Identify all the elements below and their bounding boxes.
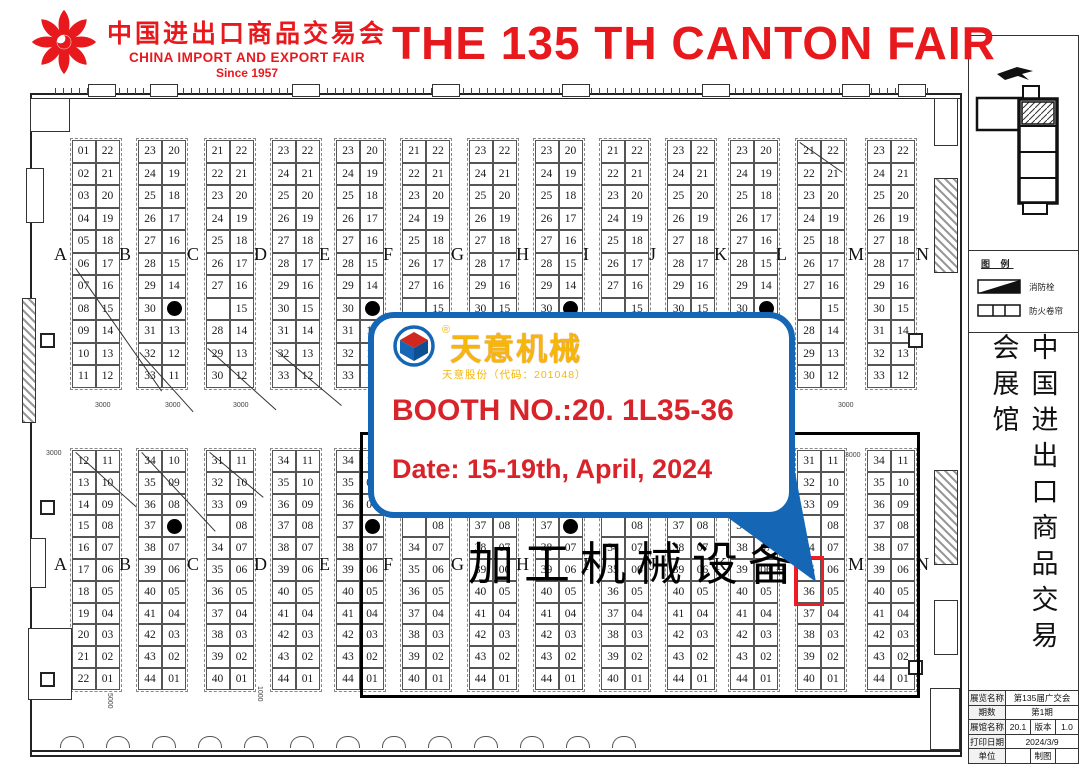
booth-cell: 20 (691, 185, 715, 208)
title-block-row: 期数 第1期 (969, 706, 1078, 721)
booth-cell: 26 (535, 208, 559, 231)
exhibitor-callout: ®天意机械 天意股份（代码：201048） BOOTH NO.:20. 1L35… (368, 312, 795, 518)
booth-cell: 34 (336, 450, 360, 472)
booth-cell: 16 (559, 230, 583, 253)
booth-cell: 22 (601, 163, 625, 186)
booth-cell: 28 (535, 253, 559, 276)
booth-cell: 26 (402, 253, 426, 276)
left-wall-room (26, 168, 44, 223)
booth-cell: 17 (360, 208, 384, 231)
booth-cell: 30 (797, 365, 821, 388)
booth-cell: 16 (72, 537, 96, 559)
booth-cell: 25 (601, 230, 625, 253)
booth-cell: 11 (230, 450, 254, 472)
booth-cell: 03 (96, 624, 120, 646)
booth-cell: 15 (891, 298, 915, 321)
right-wall-room (934, 600, 958, 655)
column-letter: D (254, 554, 267, 575)
booth-cell: 17 (891, 253, 915, 276)
booth-cell: 25 (469, 185, 493, 208)
booth-cell: 36 (206, 581, 230, 603)
booth-cell: 10 (72, 343, 96, 366)
booth-cell: 40 (138, 581, 162, 603)
booth-cell: 20 (96, 185, 120, 208)
booth-cell: 27 (601, 275, 625, 298)
right-wall-room (934, 470, 958, 565)
exhibitor-brand-row: ®天意机械 天意股份（代码：201048） (392, 324, 771, 380)
title-block-value: 第135届广交会 (1006, 691, 1078, 705)
booth-cell: 13 (162, 320, 186, 343)
booth-cell: 20 (493, 185, 517, 208)
booth-cell: 12 (891, 365, 915, 388)
booth-cell: 44 (272, 668, 296, 690)
booth-cell: 31 (336, 320, 360, 343)
booth-cell: 14 (162, 275, 186, 298)
booth-cell: 22 (402, 163, 426, 186)
booth-cell: 03 (296, 624, 320, 646)
booth-cell: 04 (230, 603, 254, 625)
title-block-value: 1.0 (1056, 720, 1078, 734)
booth-cell: 16 (230, 275, 254, 298)
door-arc (566, 736, 590, 748)
legend-label: 消防栓 (1029, 281, 1055, 293)
booth-cell: 43 (138, 646, 162, 668)
booth-cell: 33 (867, 365, 891, 388)
booth-cell: 29 (206, 343, 230, 366)
booth-cell: 14 (821, 320, 845, 343)
booth-cell: 17 (821, 253, 845, 276)
canton-fair-flower-logo (28, 6, 100, 78)
booth-cell: 28 (797, 320, 821, 343)
booth-cell: 16 (754, 230, 778, 253)
booth-cell: 05 (72, 230, 96, 253)
booth-cell: 19 (162, 163, 186, 186)
door-arc (60, 736, 84, 748)
booth-cell (797, 298, 821, 321)
booth-cell: 06 (296, 559, 320, 581)
booth-cell: 13 (821, 343, 845, 366)
booth-cell: 38 (272, 537, 296, 559)
title-block-label: 制图 (1031, 749, 1056, 763)
booth-cell: 20 (821, 185, 845, 208)
booth-cell: 02 (96, 646, 120, 668)
dimension-label: 1000 (256, 686, 263, 702)
legend-item-fire-hydrant: 消防栓 (977, 279, 1070, 294)
booth-cell: 31 (272, 320, 296, 343)
booth-cell: 25 (272, 185, 296, 208)
header: 中国进出口商品交易会 CHINA IMPORT AND EXPORT FAIR … (0, 0, 1080, 92)
booth-cell: 16 (891, 275, 915, 298)
booth-cell: 04 (96, 603, 120, 625)
booth-cell: 08 (72, 298, 96, 321)
booth-cell: 10 (96, 472, 120, 494)
column-letter: C (187, 244, 199, 265)
booth-cell: 16 (493, 275, 517, 298)
booth-cell: 03 (162, 624, 186, 646)
legend-item-fire-curtain: 防火卷帘 (977, 303, 1070, 318)
booth-cell: 18 (96, 230, 120, 253)
booth-cell: 16 (426, 275, 450, 298)
booth-cell: 28 (667, 253, 691, 276)
booth-cell: 18 (296, 230, 320, 253)
booth-cell: 07 (96, 537, 120, 559)
booth-cell: 24 (667, 163, 691, 186)
title-block-label: 单位 (969, 749, 1006, 763)
column-letter: K (714, 244, 727, 265)
booth-cell: 21 (625, 163, 649, 186)
right-wall-room (934, 98, 958, 146)
booth-cell: 02 (230, 646, 254, 668)
door-arc (336, 736, 360, 748)
booth-cell: 19 (754, 163, 778, 186)
booth-cell: 27 (667, 230, 691, 253)
booth-number-text: BOOTH NO.:20. 1L35-36 (392, 394, 771, 428)
pillar-dot (167, 519, 182, 534)
booth-cell: 21 (493, 163, 517, 186)
booth-cell: 26 (797, 253, 821, 276)
booth-cell: 25 (336, 185, 360, 208)
dimension-label: 3000 (46, 450, 62, 457)
booth-cell: 24 (206, 208, 230, 231)
column-letter: A (54, 244, 67, 265)
pillar-dot (167, 301, 182, 316)
booth-cell: 35 (138, 472, 162, 494)
booth-cell: 24 (535, 163, 559, 186)
booth-cell: 44 (138, 668, 162, 690)
door-arc (198, 736, 222, 748)
title-block-value: 第1期 (1006, 706, 1078, 720)
fire-curtain-icon (977, 303, 1021, 318)
booth-cell: 19 (891, 208, 915, 231)
booth-cell: 24 (469, 163, 493, 186)
booth-cell: 08 (96, 515, 120, 537)
booth-cell: 29 (667, 275, 691, 298)
booth-cell: 23 (535, 140, 559, 163)
booth-cell: 19 (426, 208, 450, 231)
dimension-label: 3000 (165, 402, 181, 409)
booth-cell: 04 (72, 208, 96, 231)
booth-cell: 27 (469, 230, 493, 253)
door-arc (520, 736, 544, 748)
booth-cell: 33 (336, 365, 360, 388)
dimension-label: 5000 (106, 693, 113, 709)
booth-cell: 02 (296, 646, 320, 668)
booth-cell: 29 (535, 275, 559, 298)
booth-cell: 08 (296, 515, 320, 537)
tianyi-logo-icon (392, 324, 436, 368)
booth-cell: 16 (296, 275, 320, 298)
booth-cell: 16 (162, 230, 186, 253)
booth-cell: 23 (336, 140, 360, 163)
booth-cell: 30 (138, 298, 162, 321)
booth-cell: 05 (96, 581, 120, 603)
booth-cell: 30 (206, 365, 230, 388)
booth-cell: 21 (230, 163, 254, 186)
dimension-label: 3000 (838, 402, 854, 409)
booth-cell: 26 (867, 208, 891, 231)
booth-cell: 33 (206, 494, 230, 516)
booth-cell: 34 (272, 450, 296, 472)
booth-cell: 19 (72, 603, 96, 625)
booth-cell: 21 (891, 163, 915, 186)
booth-cell: 27 (797, 275, 821, 298)
booth-cell: 37 (138, 515, 162, 537)
booth-cell: 36 (138, 494, 162, 516)
booth-cell: 24 (730, 163, 754, 186)
right-wall-room (930, 688, 960, 750)
drawing-title-block: 展览名称 第135届广交会 期数 第1期 展馆名称 20.1 版本 1.0 打印… (968, 690, 1079, 764)
booth-cell: 18 (559, 185, 583, 208)
booth-cell: 21 (402, 140, 426, 163)
booth-cell: 22 (426, 140, 450, 163)
booth-cell: 40 (336, 581, 360, 603)
booth-cell: 41 (138, 603, 162, 625)
booth-cell: 11 (72, 365, 96, 388)
booth-cell: 26 (730, 208, 754, 231)
booth-cell: 01 (72, 140, 96, 163)
booth-cell: 25 (867, 185, 891, 208)
logo-text-block: 中国进出口商品交易会 CHINA IMPORT AND EXPORT FAIR … (102, 14, 392, 80)
booth-cell: 15 (296, 298, 320, 321)
booth-cell: 24 (867, 163, 891, 186)
booth-cell: 17 (162, 208, 186, 231)
title-block-label: 展览名称 (969, 691, 1006, 705)
booth-cell: 13 (296, 343, 320, 366)
booth-cell: 07 (296, 537, 320, 559)
booth-cell: 39 (272, 559, 296, 581)
column-letter: B (119, 554, 131, 575)
booth-cell: 12 (230, 365, 254, 388)
booth-cell: 17 (754, 208, 778, 231)
booth-cell: 20 (72, 624, 96, 646)
booth-cell: 18 (754, 185, 778, 208)
door-arc (290, 736, 314, 748)
booth-cell: 01 (96, 668, 120, 690)
booth-cell: 20 (360, 140, 384, 163)
booth-cell: 25 (535, 185, 559, 208)
booth-cell: 32 (206, 472, 230, 494)
booth-cell: 06 (162, 559, 186, 581)
booth-cell: 26 (272, 208, 296, 231)
booth-cell: 28 (336, 253, 360, 276)
booth-cell: 17 (493, 253, 517, 276)
booth-cell: 21 (296, 163, 320, 186)
booth-cell: 19 (559, 163, 583, 186)
booth-cell: 16 (360, 230, 384, 253)
fair-title: THE 135 TH CANTON FAIR (392, 16, 996, 70)
booth-cell: 22 (625, 140, 649, 163)
booth-cell: 15 (72, 515, 96, 537)
booth-cell: 15 (559, 253, 583, 276)
booth-cell: 12 (96, 365, 120, 388)
column-letter: D (254, 244, 267, 265)
door-arc (106, 736, 130, 748)
booth-cell: 18 (691, 230, 715, 253)
booth-cell: 11 (96, 450, 120, 472)
booth-cell: 29 (138, 275, 162, 298)
legend-label: 防火卷帘 (1029, 305, 1063, 317)
booth-cell: 14 (230, 320, 254, 343)
title-block-label: 展馆名称 (969, 720, 1006, 734)
booth-cell: 23 (867, 140, 891, 163)
column-letter: E (319, 244, 330, 265)
booth-cell: 03 (230, 624, 254, 646)
booth-cell: 10 (162, 450, 186, 472)
booth-cell: 22 (797, 163, 821, 186)
booth-cell: 15 (162, 253, 186, 276)
booth-cell: 43 (336, 646, 360, 668)
column-letter: I (583, 244, 589, 265)
booth-cell: 36 (336, 494, 360, 516)
booth-cell: 32 (336, 343, 360, 366)
booth-cell: 22 (493, 140, 517, 163)
booth-cell: 37 (336, 515, 360, 537)
column-letter: H (516, 244, 529, 265)
booth-cell: 15 (754, 253, 778, 276)
booth-cell: 18 (162, 185, 186, 208)
booth-cell: 39 (206, 646, 230, 668)
booth-cell: 18 (360, 185, 384, 208)
booth-cell: 11 (296, 450, 320, 472)
booth-cell: 19 (625, 208, 649, 231)
door-arc (382, 736, 406, 748)
booth-cell: 40 (272, 581, 296, 603)
booth-cell: 21 (72, 646, 96, 668)
brand-name: 天意机械 (450, 332, 582, 367)
booth-cell: 20 (559, 140, 583, 163)
booth-cell: 04 (162, 603, 186, 625)
booth-cell: 14 (96, 320, 120, 343)
booth-cell: 24 (601, 208, 625, 231)
booth-cell: 23 (402, 185, 426, 208)
booth-cell: 15 (360, 253, 384, 276)
booth-cell: 13 (72, 472, 96, 494)
booth-cell: 26 (138, 208, 162, 231)
column-marker (40, 500, 55, 515)
left-wall-room (30, 538, 46, 588)
venue-title-panel: 中国进出口商品交易会展馆 (968, 332, 1079, 691)
booth-cell: 26 (206, 253, 230, 276)
booth-cell: 19 (821, 208, 845, 231)
booth-cell: 13 (96, 343, 120, 366)
booth-cell: 39 (138, 559, 162, 581)
booth-cell: 17 (691, 253, 715, 276)
booth-cell: 18 (821, 230, 845, 253)
booth-cell: 20 (891, 185, 915, 208)
logo-since: Since 1957 (102, 66, 392, 80)
booth-cell: 22 (891, 140, 915, 163)
booth-cell: 27 (730, 230, 754, 253)
venue-vertical-title: 中国进出口商品交易会展馆 (985, 333, 1063, 690)
booth-cell: 20 (296, 185, 320, 208)
booth-cell: 25 (797, 230, 821, 253)
column-marker (908, 333, 923, 348)
title-block-label: 期数 (969, 706, 1006, 720)
registered-mark: ® (442, 324, 450, 336)
booth-cell: 26 (667, 208, 691, 231)
booth-cell: 30 (272, 298, 296, 321)
booth-cell: 01 (162, 668, 186, 690)
title-block-label: 版本 (1031, 720, 1056, 734)
left-wall-room (28, 628, 72, 700)
booth-cell: 25 (730, 185, 754, 208)
booth-cell: 16 (821, 275, 845, 298)
booth-cell: 05 (230, 581, 254, 603)
booth-cell: 24 (272, 163, 296, 186)
column-letter: F (383, 244, 393, 265)
booth-cell: 22 (230, 140, 254, 163)
title-block-row: 展馆名称 20.1 版本 1.0 (969, 720, 1078, 735)
booth-cell: 21 (691, 163, 715, 186)
title-block-value: 2024/3/9 (1006, 735, 1078, 749)
booth-cell: 41 (336, 603, 360, 625)
booth-cell: 25 (138, 185, 162, 208)
booth-cell: 41 (272, 603, 296, 625)
title-block-value (1006, 749, 1031, 763)
booth-cell: 42 (336, 624, 360, 646)
booth-cell: 06 (230, 559, 254, 581)
booth-cell: 19 (493, 208, 517, 231)
left-wall-room (22, 298, 36, 423)
booth-cell: 01 (230, 668, 254, 690)
booth-cell: 24 (402, 208, 426, 231)
page: 中国进出口商品交易会 CHINA IMPORT AND EXPORT FAIR … (0, 0, 1080, 764)
booth-cell (206, 298, 230, 321)
booth-cell: 43 (272, 646, 296, 668)
column-letter: J (649, 244, 656, 265)
booth-cell: 24 (336, 163, 360, 186)
booth-cell: 20 (426, 185, 450, 208)
door-arc (428, 736, 452, 748)
booth-cell: 19 (691, 208, 715, 231)
booth-cell: 30 (336, 298, 360, 321)
booth-cell: 30 (867, 298, 891, 321)
booth-cell: 28 (469, 253, 493, 276)
title-block-value (1056, 749, 1078, 763)
booth-cell: 27 (138, 230, 162, 253)
booth-cell: 23 (206, 185, 230, 208)
dimension-label: 3000 (95, 402, 111, 409)
booth-cell: 23 (138, 140, 162, 163)
booth-cell: 36 (272, 494, 296, 516)
booth-cell: 05 (296, 581, 320, 603)
booth-cell: 27 (402, 275, 426, 298)
booth-cell: 29 (797, 343, 821, 366)
booth-cell: 20 (162, 140, 186, 163)
booth-cell: 06 (96, 559, 120, 581)
machinery-zone-label: 加工机械设备 (468, 528, 804, 594)
booth-cell: 02 (162, 646, 186, 668)
booth-cell: 14 (559, 275, 583, 298)
title-block-label: 打印日期 (969, 735, 1006, 749)
booth-cell: 40 (206, 668, 230, 690)
booth-cell: 42 (272, 624, 296, 646)
title-block-row: 打印日期 2024/3/9 (969, 735, 1078, 750)
booth-cell: 01 (296, 668, 320, 690)
right-wall-room (934, 178, 958, 273)
booth-cell: 29 (272, 275, 296, 298)
booth-cell: 15 (230, 298, 254, 321)
booth-cell: 19 (296, 208, 320, 231)
booth-cell: 24 (138, 163, 162, 186)
logo-english-name: CHINA IMPORT AND EXPORT FAIR (102, 50, 392, 65)
booth-cell: 18 (891, 230, 915, 253)
booth-cell: 05 (162, 581, 186, 603)
booth-cell: 18 (230, 230, 254, 253)
booth-cell: 25 (206, 230, 230, 253)
booth-cell: 03 (72, 185, 96, 208)
booth-cell: 42 (138, 624, 162, 646)
